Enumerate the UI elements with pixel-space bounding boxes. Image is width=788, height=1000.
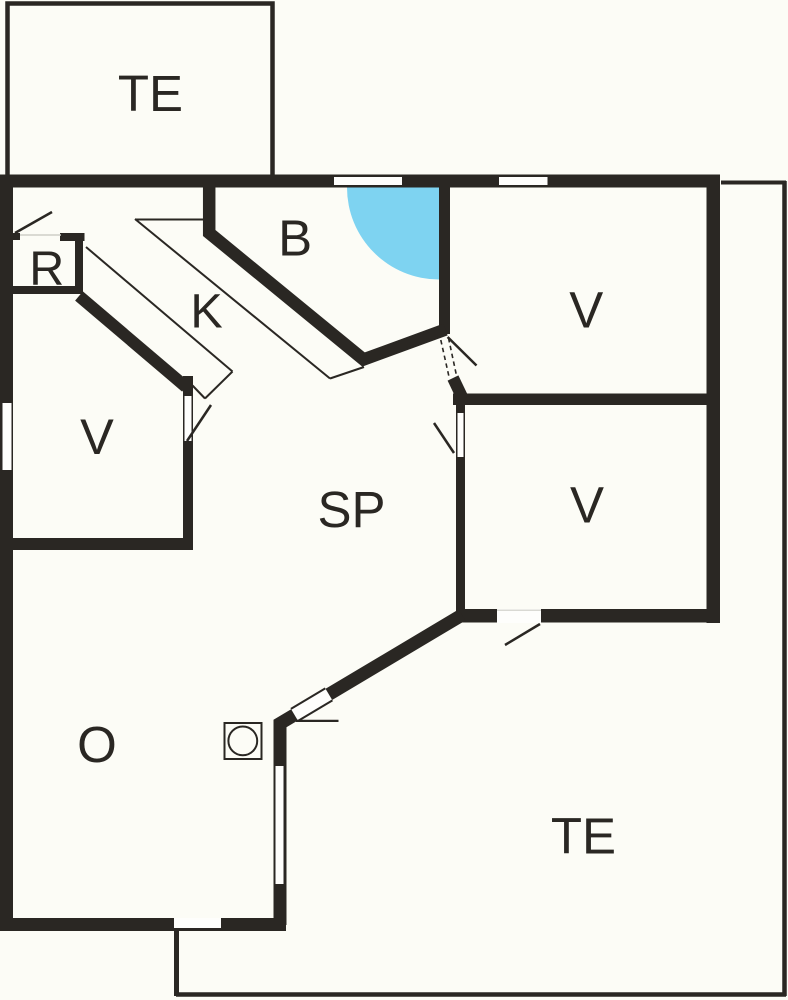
svg-text:V: V [570, 477, 604, 534]
svg-text:V: V [569, 282, 603, 339]
svg-text:O: O [77, 716, 117, 773]
svg-text:SP: SP [317, 481, 385, 538]
svg-text:B: B [278, 210, 312, 267]
svg-text:TE: TE [551, 808, 616, 865]
svg-text:R: R [29, 242, 64, 296]
svg-text:TE: TE [118, 65, 183, 122]
svg-text:V: V [80, 408, 114, 465]
svg-text:K: K [190, 285, 222, 339]
